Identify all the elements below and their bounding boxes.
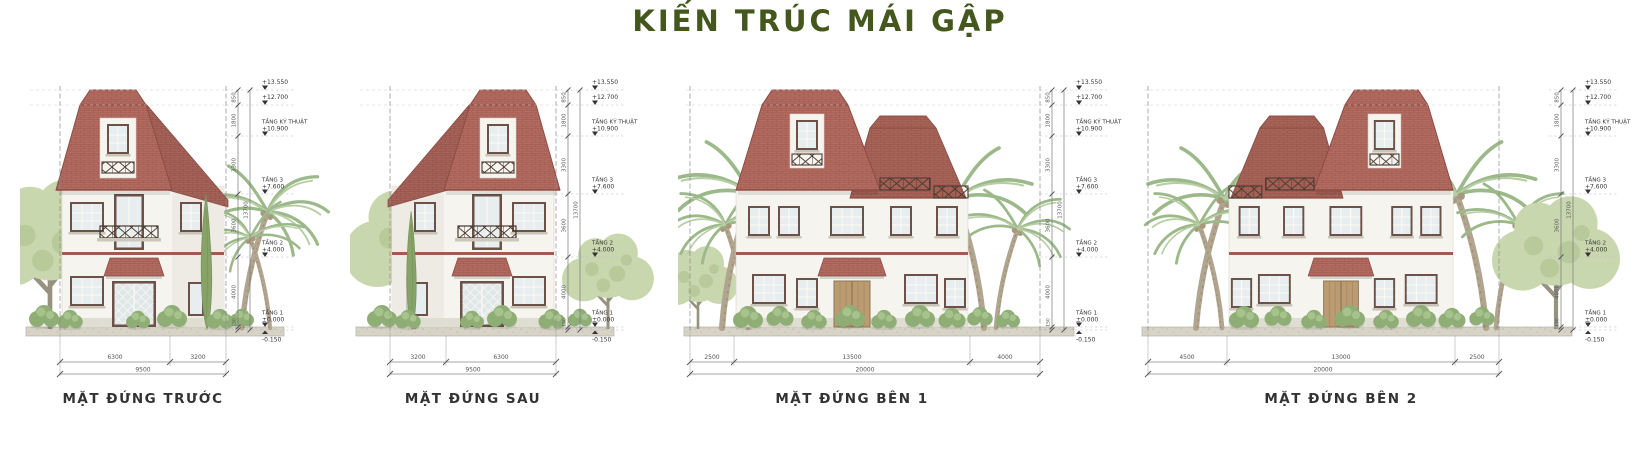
dimension-total: 9500: [465, 367, 480, 374]
dimension-total: 9500: [135, 367, 150, 374]
roof-level-guides: [686, 90, 1038, 105]
house-side2-elevation: [1229, 90, 1453, 327]
level-annotations: [556, 79, 638, 344]
bush: [1469, 307, 1495, 327]
elevation-rear-panel: 3200 6300 9500 MẶT ĐỨNG SAU: [350, 70, 680, 415]
horizontal-dimensions: 3200 6300 9500: [387, 332, 559, 377]
dimension-value: 4000: [997, 354, 1012, 361]
dimension-value: 3200: [190, 354, 205, 361]
elevation-label: MẶT ĐỨNG BÊN 2: [1264, 389, 1417, 407]
elevation-label: MẶT ĐỨNG SAU: [405, 389, 541, 407]
elevation-label: MẶT ĐỨNG BÊN 1: [775, 389, 928, 407]
dimension-total: 20000: [1313, 367, 1332, 374]
horizontal-dimensions: 6300 3200 9500: [57, 332, 229, 377]
page-title: KIẾN TRÚC MÁI GẬP: [0, 4, 1640, 38]
dimension-value: 13000: [1331, 354, 1350, 361]
elevation-side2-panel: 4500 13000 2500 20000 MẶT ĐỨNG BÊN 2: [1136, 70, 1636, 415]
roof-level-guides: [1144, 90, 1496, 105]
dimension-value: 13500: [842, 354, 861, 361]
elevation-front-panel: 6300 3200 9500 MẶT ĐỨNG TRƯỚC: [20, 70, 350, 415]
deciduous-tree: [1492, 196, 1620, 329]
dimension-value: 4500: [1179, 354, 1194, 361]
dimension-value: 6300: [493, 354, 508, 361]
elevation-side1-panel: 2500 13500 4000 20000 MẶT ĐỨNG BÊN 1: [678, 70, 1138, 415]
dimension-value: 3200: [410, 354, 425, 361]
dimension-value: 2500: [1469, 354, 1484, 361]
house-side1-elevation: [736, 90, 968, 327]
horizontal-dimensions: 2500 13500 4000 20000: [687, 332, 1043, 377]
architecture-elevation-sheet: KIẾN TRÚC MÁI GẬP: [0, 0, 1640, 460]
elevation-label: MẶT ĐỨNG TRƯỚC: [62, 389, 223, 407]
dimension-value: 6300: [107, 354, 122, 361]
bush: [967, 307, 993, 327]
dimension-total: 20000: [855, 367, 874, 374]
bush: [29, 305, 59, 329]
dimension-value: 2500: [704, 354, 719, 361]
ground-strip: [356, 327, 614, 336]
horizontal-dimensions: 4500 13000 2500 20000: [1145, 332, 1502, 377]
level-annotations: [1040, 79, 1122, 344]
